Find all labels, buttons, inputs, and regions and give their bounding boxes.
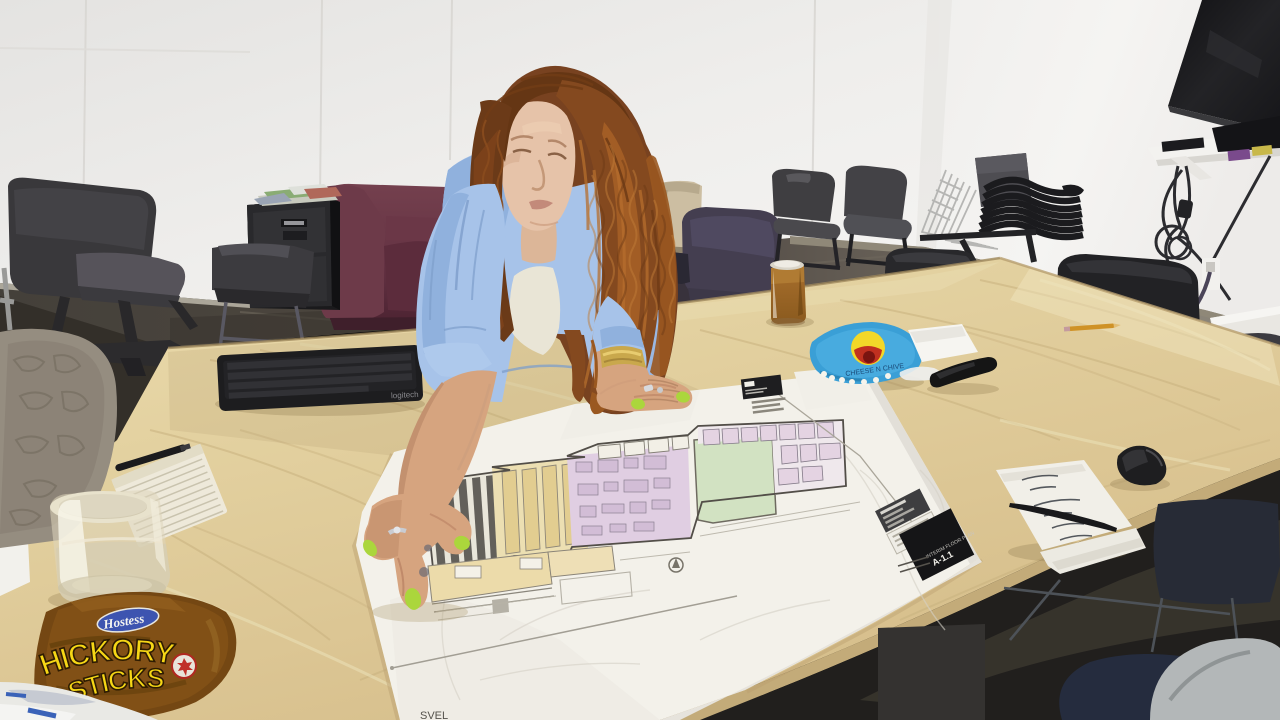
svg-text:logitech: logitech (391, 390, 419, 400)
svg-text:SVEL: SVEL (420, 710, 448, 720)
